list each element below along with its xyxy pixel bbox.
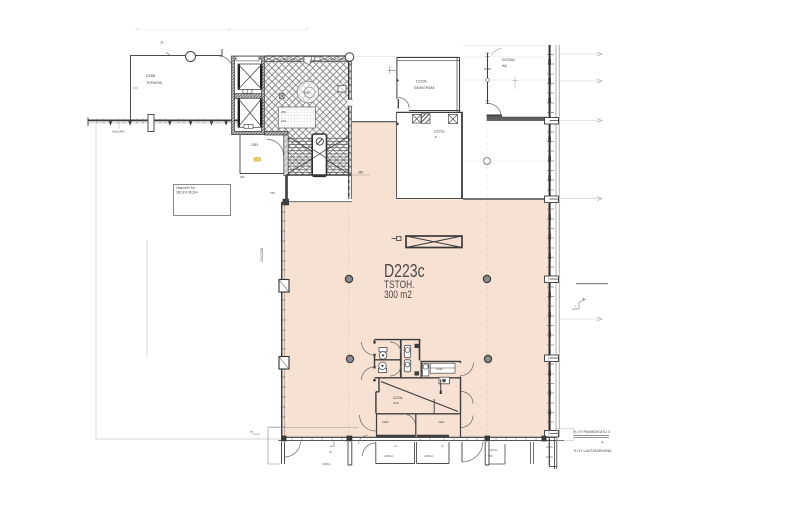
svg-text:400: 400 [240, 175, 245, 179]
svg-text:D223b: D223b [416, 80, 427, 84]
svg-text:24: 24 [160, 41, 164, 45]
svg-text:40db: 40db [303, 91, 310, 95]
svg-text:D223a: D223a [393, 396, 403, 400]
svg-text:D286: D286 [146, 74, 155, 78]
svg-text:4,05m²: 4,05m² [384, 454, 393, 458]
svg-text:228b: 228b [382, 420, 389, 424]
svg-text:D223u: D223u [434, 129, 445, 133]
svg-text:WA: WA [502, 64, 508, 68]
svg-text:K.OY PANIMOKATU 4: K.OY PANIMOKATU 4 [574, 430, 610, 434]
svg-text:nn: nn [250, 430, 254, 434]
svg-text:nn: nn [329, 450, 333, 454]
svg-text:750: 750 [270, 191, 275, 195]
svg-text:160x1400: 160x1400 [112, 130, 125, 134]
svg-text:Wb: Wb [488, 454, 493, 458]
svg-text:D223bb: D223bb [502, 58, 515, 62]
svg-text:25b: 25b [281, 110, 286, 114]
svg-text:450: 450 [358, 171, 364, 175]
svg-text:K.OY LAUTATARHANK.: K.OY LAUTATARHANK. [574, 449, 612, 453]
svg-text:TERASSI: TERASSI [146, 81, 162, 85]
svg-text:4,05m²: 4,05m² [424, 454, 433, 458]
svg-text:4,05m²: 4,05m² [488, 448, 497, 452]
svg-text:SÄHKÖPÄÄK: SÄHKÖPÄÄK [414, 86, 436, 90]
svg-text:228c: 228c [438, 420, 445, 424]
svg-text:2342100: 2342100 [260, 248, 264, 262]
svg-text:2stana/9+1s²: 2stana/9+1s² [176, 186, 196, 190]
svg-text:300 m2: 300 m2 [384, 289, 412, 301]
svg-text:28h 3% 35,5m²: 28h 3% 35,5m² [176, 191, 199, 195]
svg-text:nn: nn [601, 440, 605, 444]
svg-text:223k: 223k [437, 367, 444, 371]
svg-text:VAR: VAR [393, 401, 400, 405]
svg-text:640: 640 [281, 119, 286, 123]
svg-text:2283: 2283 [251, 143, 258, 147]
svg-text:4,05m: 4,05m [322, 462, 331, 466]
